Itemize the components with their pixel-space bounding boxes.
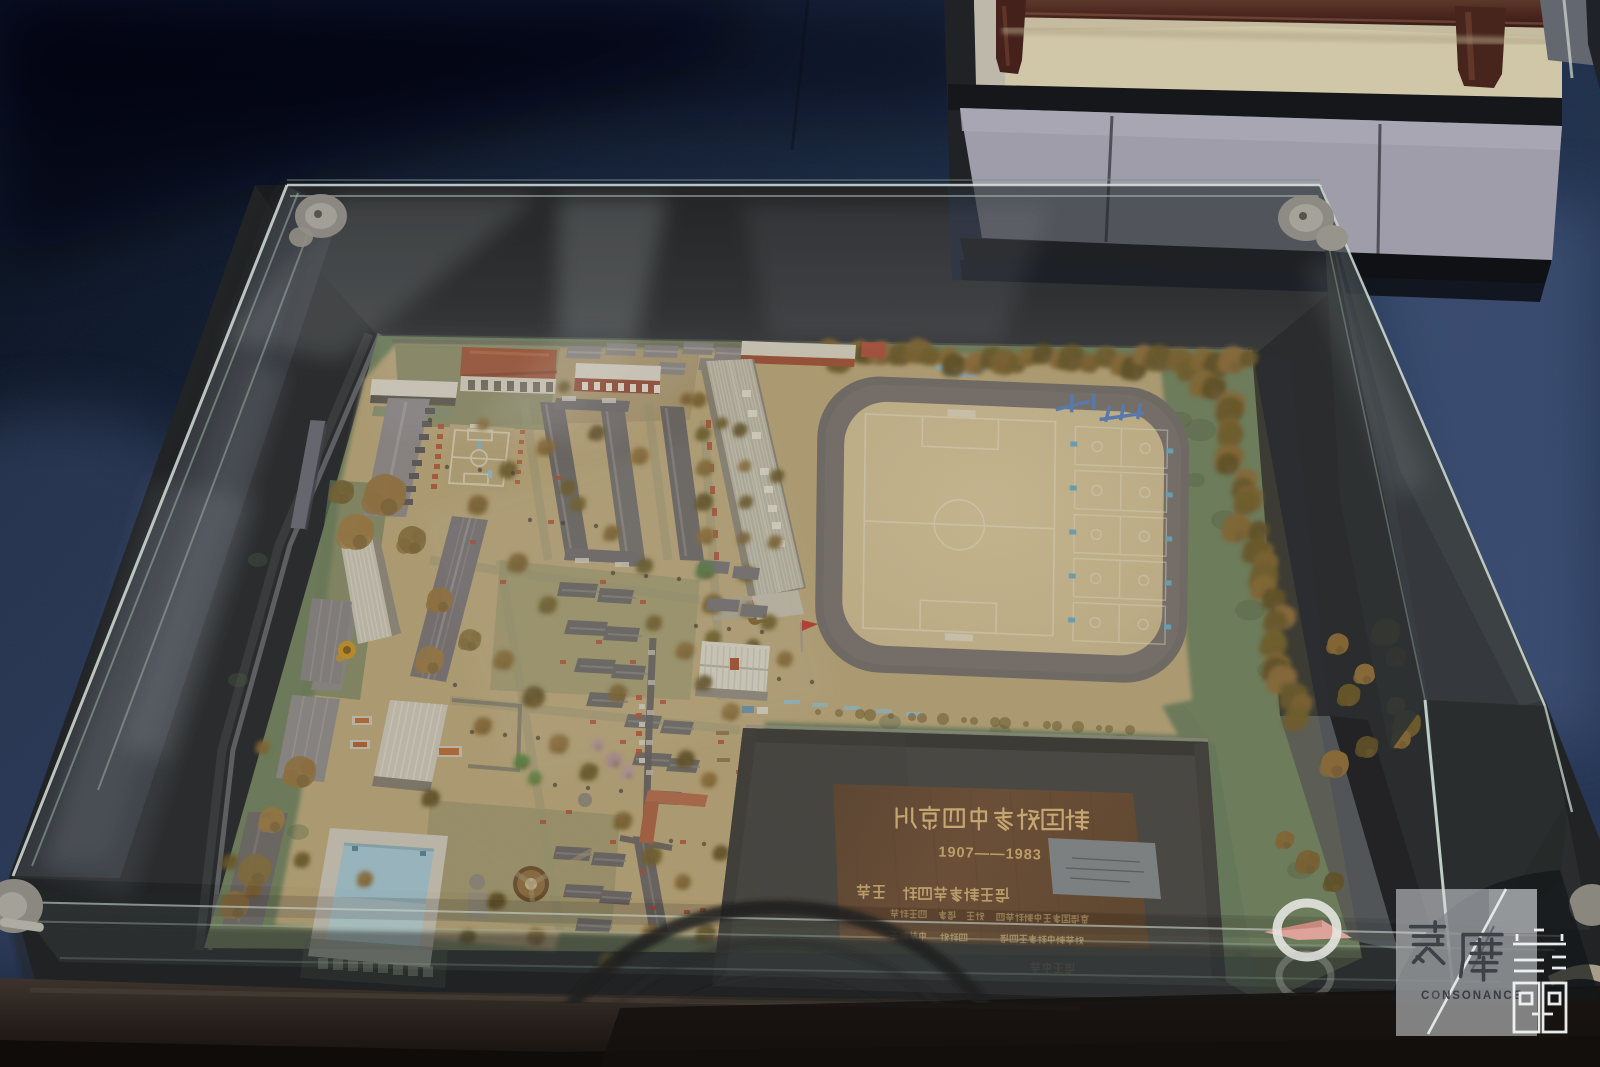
svg-text:CONSONANCE: CONSONANCE <box>1421 990 1523 1002</box>
